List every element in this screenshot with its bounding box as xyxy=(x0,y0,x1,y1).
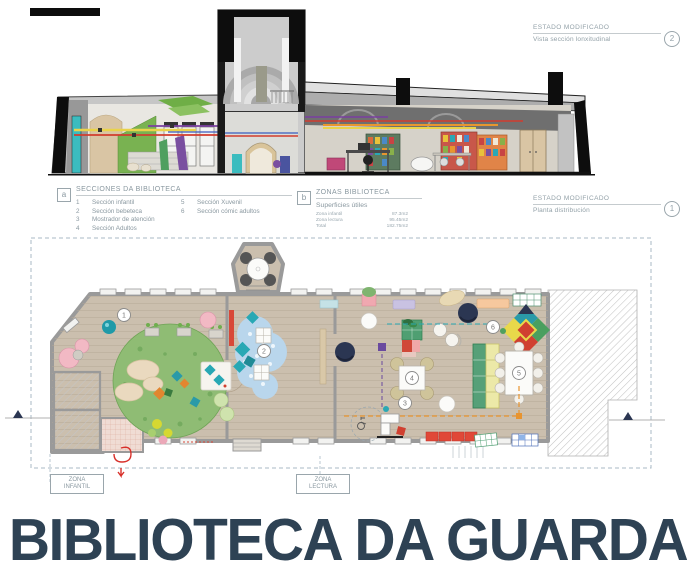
floor-plan: 1 2 3 4 5 6 xyxy=(5,234,665,484)
item-label: Sección bebeteca xyxy=(92,208,142,217)
bottom-benches xyxy=(426,432,538,447)
legend-zonas-title: ZONAS BIBLIOTECA xyxy=(316,189,422,198)
zona-value: 182.75m2 xyxy=(387,224,408,230)
section-tower xyxy=(218,10,305,173)
item-label: Mostrador de atención xyxy=(92,216,155,225)
legend-rule xyxy=(316,198,422,199)
item-num: 5 xyxy=(181,199,197,208)
item-label: Sección Adultos xyxy=(92,225,137,234)
plan-marker-2: 2 xyxy=(262,349,266,356)
legend-zonas: b ZONAS BIBLIOTECA Superficies útiles Zo… xyxy=(297,189,422,229)
plan-marker-3: 3 xyxy=(403,401,407,408)
item-label: Sección Xuvenil xyxy=(197,199,242,208)
legend-key-b: b xyxy=(297,191,311,205)
item-label: Sección infantil xyxy=(92,199,134,208)
plan-marker-6: 6 xyxy=(491,325,495,332)
zone-label-line: INFANTIL xyxy=(55,484,99,491)
play-mat xyxy=(201,362,231,390)
section-doors xyxy=(520,130,546,172)
section-annotation: ESTADO MODIFICADO Vista sección lonxitud… xyxy=(533,24,661,43)
legend-secciones-title: SECCIONES DA BIBLIOTECA xyxy=(76,186,292,195)
plan-annotation-heading: ESTADO MODIFICADO xyxy=(533,195,661,202)
legend-rule xyxy=(76,195,292,196)
item-num: 4 xyxy=(76,225,92,234)
presentation-board: ESTADO MODIFICADO Vista sección lonxitud… xyxy=(0,0,696,580)
plan-marker-1: 1 xyxy=(122,313,126,320)
item-label: Sección cómic adultos xyxy=(197,208,260,217)
section-annotation-heading: ESTADO MODIFICADO xyxy=(533,24,661,31)
zone-label-line: LECTURA xyxy=(301,484,345,491)
checkered-table xyxy=(513,294,541,306)
plan-annotation: ESTADO MODIFICADO Planta distribución xyxy=(533,195,661,214)
wall-shelf-tan xyxy=(320,329,326,384)
legend-zonas-subtitle: Superficies útiles xyxy=(316,202,422,209)
service-room-hatch xyxy=(54,410,100,450)
bean-bag xyxy=(411,157,433,171)
item-num: 3 xyxy=(76,216,92,225)
section-neighbor-roof xyxy=(30,8,100,16)
item-num: 1 xyxy=(76,199,92,208)
section-ref-number: 2 xyxy=(664,31,680,47)
zona-label: Total xyxy=(316,224,387,230)
legend-secciones: a SECCIONES DA BIBLIOTECA 1Sección infan… xyxy=(57,186,292,233)
project-title: BIBLIOTECA DA GUARDA xyxy=(0,506,696,575)
item-num: 6 xyxy=(181,208,197,217)
plan-annotation-subtitle: Planta distribución xyxy=(533,207,661,214)
plan-marker-5: 5 xyxy=(517,371,521,378)
teal-pouf xyxy=(102,320,116,334)
zone-label-line: ZONA xyxy=(301,477,345,484)
neighbor-hatch xyxy=(548,290,637,456)
section-left-wing xyxy=(52,95,218,173)
plan-marker-4: 4 xyxy=(410,376,414,383)
service-room-hatch xyxy=(54,372,100,410)
section-right-wing xyxy=(305,72,591,173)
bean-bag-navy xyxy=(458,303,478,323)
item-num: 2 xyxy=(76,208,92,217)
zone-label-line: ZONA xyxy=(55,477,99,484)
double-shelving xyxy=(473,344,499,408)
zone-label-infantil: ZONA INFANTIL xyxy=(50,474,104,494)
entrance-steps xyxy=(233,439,261,451)
zona-row: Total182.75m2 xyxy=(316,224,408,230)
windows-top xyxy=(100,289,541,295)
dimension-ticks xyxy=(453,446,483,458)
section-annotation-subtitle: Vista sección lonxitudinal xyxy=(533,36,661,43)
legend-secciones-col2: 5Sección Xuvenil 6Sección cómic adultos xyxy=(181,199,260,233)
legend-secciones-col1: 1Sección infantil 2Sección bebeteca 3Mos… xyxy=(76,199,181,233)
legend-key-a: a xyxy=(57,188,71,202)
annotation-rule xyxy=(533,204,661,205)
plant-shelf xyxy=(402,319,422,357)
white-pouf xyxy=(361,313,377,329)
pink-pouf xyxy=(200,312,216,328)
zone-label-lectura: ZONA LECTURA xyxy=(296,474,350,494)
wall-shelf-red xyxy=(229,310,234,346)
bookshelf-orange xyxy=(477,135,507,170)
plan-ref-number: 1 xyxy=(664,201,680,217)
white-pouf xyxy=(439,396,455,412)
annotation-rule xyxy=(533,33,661,34)
